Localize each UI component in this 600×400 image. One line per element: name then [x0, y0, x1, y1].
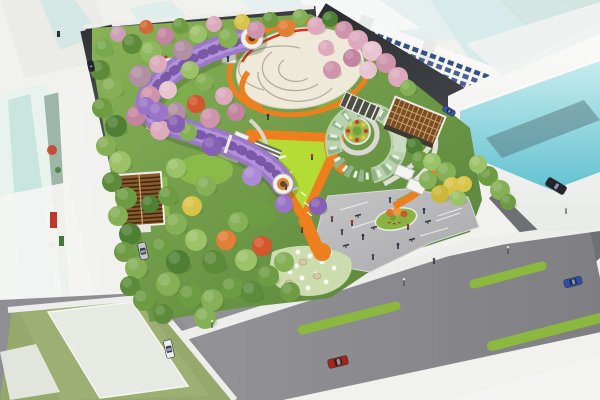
tree-highlight	[121, 225, 132, 236]
tree-highlight	[112, 27, 120, 35]
tree-highlight	[122, 278, 132, 288]
tree-highlight	[124, 36, 134, 46]
flower-cluster	[296, 250, 301, 255]
island-red-mark-c	[398, 222, 401, 223]
rendering-canvas	[0, 0, 600, 400]
tree-highlight	[139, 98, 148, 107]
tree-highlight	[390, 69, 400, 79]
tree-highlight	[421, 172, 430, 181]
flower-cluster	[308, 254, 313, 259]
tree-highlight	[202, 110, 212, 120]
tree-highlight	[320, 41, 328, 49]
tree-highlight	[128, 108, 138, 118]
tree-highlight	[425, 154, 434, 163]
person	[372, 256, 374, 260]
aerial-rendering	[0, 0, 600, 400]
tree-highlight	[471, 156, 480, 165]
tree-highlight	[408, 139, 416, 147]
tree-highlight	[311, 198, 320, 207]
tree-highlight	[140, 21, 147, 28]
tree-highlight	[150, 104, 160, 114]
flower-cluster	[324, 280, 329, 285]
person	[331, 218, 333, 222]
tree-highlight	[249, 22, 258, 31]
tree-highlight	[230, 214, 240, 224]
tree-highlight	[309, 18, 318, 27]
person	[285, 186, 287, 190]
tree-highlight	[229, 104, 238, 113]
tree-highlight	[161, 82, 170, 91]
tree-highlight	[160, 188, 170, 198]
tree-highlight	[158, 274, 170, 286]
tree-highlight	[264, 13, 272, 21]
tree-highlight	[217, 88, 226, 97]
tree-highlight	[345, 50, 354, 59]
person	[301, 229, 303, 233]
tree-highlight	[168, 252, 180, 264]
tree-highlight	[204, 252, 216, 264]
tree-highlight	[198, 178, 208, 188]
tree-highlight	[243, 283, 254, 294]
garden-rock	[299, 259, 307, 265]
tree-highlight	[204, 138, 214, 148]
tree-highlight	[189, 96, 198, 105]
tree-highlight	[168, 160, 178, 170]
person	[423, 210, 425, 214]
tree-highlight	[244, 168, 254, 178]
tree-highlight	[155, 306, 165, 316]
tree-highlight	[135, 291, 146, 302]
tree-highlight	[254, 238, 264, 248]
tree-highlight	[279, 20, 288, 29]
tree-highlight	[97, 40, 106, 49]
tree-highlight	[152, 122, 162, 132]
flower-cluster	[306, 286, 311, 291]
person	[407, 226, 409, 230]
tree-highlight	[452, 191, 460, 199]
green-facade-accent	[59, 236, 64, 246]
flower-cluster	[332, 266, 337, 271]
tree-highlight	[197, 74, 206, 83]
island-shrub-d	[390, 215, 396, 221]
tree-highlight	[203, 291, 214, 302]
tree-highlight	[142, 88, 152, 98]
tree-highlight	[158, 28, 167, 37]
tree-highlight	[151, 56, 160, 65]
tree-highlight	[111, 153, 122, 164]
tree-highlight	[187, 231, 198, 242]
tree-highlight	[174, 19, 182, 27]
tree-highlight	[103, 79, 114, 90]
tree-highlight	[236, 15, 244, 23]
tree-highlight	[184, 198, 194, 208]
tree-highlight	[277, 196, 286, 205]
tree-highlight	[337, 22, 346, 31]
tree-highlight	[142, 43, 153, 54]
tree-highlight	[378, 55, 388, 65]
person	[433, 260, 435, 264]
island-shrub-e	[398, 216, 404, 222]
red-facade-accent	[50, 212, 57, 228]
tree-highlight	[325, 62, 334, 71]
tree-highlight	[116, 244, 126, 254]
distant-car	[57, 31, 60, 37]
tree-highlight	[191, 26, 200, 35]
tree-highlight	[282, 284, 292, 294]
tree-highlight	[98, 138, 108, 148]
tree-highlight	[458, 177, 466, 185]
tree-highlight	[492, 182, 502, 192]
tree-highlight	[107, 117, 118, 128]
tree-highlight	[259, 267, 270, 278]
tree-highlight	[131, 67, 142, 78]
tree-highlight	[104, 174, 114, 184]
tree-highlight	[413, 152, 422, 161]
tree-highlight	[361, 62, 370, 71]
tree-highlight	[110, 208, 120, 218]
tree-highlight	[196, 309, 207, 320]
person	[227, 58, 229, 62]
person	[351, 222, 353, 226]
tree-highlight	[180, 286, 192, 298]
tree-highlight	[168, 104, 178, 114]
island-red-mark-a	[388, 222, 391, 223]
person	[311, 156, 313, 160]
tree-highlight	[438, 164, 448, 174]
tunnel-south-portal	[273, 174, 293, 194]
island-red-mark-b	[393, 223, 396, 224]
tree-highlight	[294, 10, 302, 18]
tree-highlight	[350, 32, 360, 42]
person	[341, 231, 343, 235]
tree-highlight	[94, 100, 104, 110]
person	[362, 236, 364, 240]
tree-highlight	[208, 17, 216, 25]
tree-highlight	[167, 215, 178, 226]
flower-cluster	[300, 276, 305, 281]
garden-rock	[313, 273, 321, 279]
tree-highlight	[183, 62, 192, 71]
person	[389, 199, 391, 203]
entrance-red-flag	[165, 56, 168, 59]
tree-highlight	[324, 12, 332, 20]
tree-highlight	[169, 116, 178, 125]
tree-highlight	[364, 43, 374, 53]
tree-highlight	[175, 42, 185, 52]
tree-highlight	[445, 178, 454, 187]
tree-highlight	[218, 232, 228, 242]
tree-highlight	[502, 195, 510, 203]
tree-highlight	[153, 239, 164, 250]
flower-bed-center	[353, 127, 362, 136]
tree-highlight	[237, 251, 248, 262]
tree-highlight	[127, 259, 138, 270]
person	[397, 245, 399, 249]
tree-highlight	[117, 189, 128, 200]
person	[267, 116, 269, 120]
tree-highlight	[220, 30, 230, 40]
tree-highlight	[276, 254, 286, 264]
tree-highlight	[143, 196, 152, 205]
path-plaza-mouth	[313, 243, 331, 261]
tree-highlight	[223, 279, 234, 290]
tree-highlight	[402, 81, 410, 89]
